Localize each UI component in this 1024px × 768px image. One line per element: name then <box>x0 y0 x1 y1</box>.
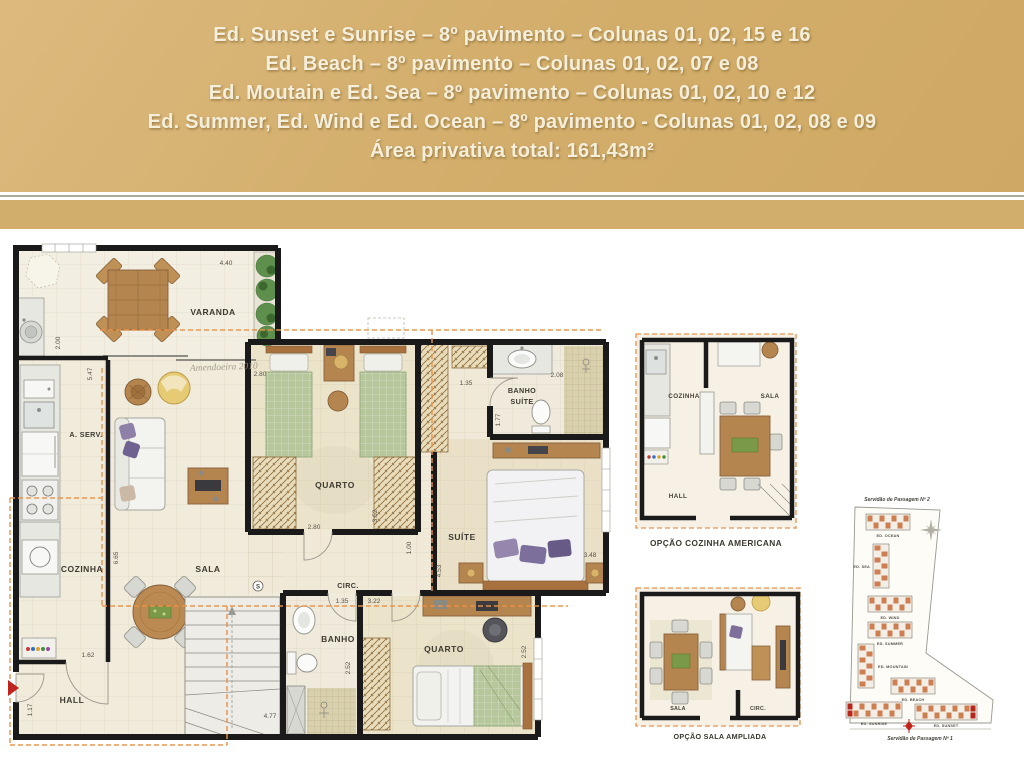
bed-single-1 <box>266 346 312 457</box>
closet-quarto2-hatch <box>362 638 390 730</box>
dim-varanda-depth: 2.00 <box>55 336 62 349</box>
dim-hall-width: 1.17 <box>27 703 34 716</box>
desk-chair <box>483 618 507 642</box>
stool <box>328 391 348 411</box>
room-label-banho-suite-1: BANHO <box>508 386 536 395</box>
room-label-a-serv: A. SERV. <box>69 430 102 439</box>
dim-suite-width: 3.48 <box>584 552 597 559</box>
dim-banho-door: 1.35 <box>336 598 349 605</box>
building-ed-sunset-label: ED. SUNSET <box>934 724 959 728</box>
site-key-plan: Servidão de Passagem Nº 2 Servidão de Pa… <box>843 468 1018 758</box>
room-label-quarto-top: QUARTO <box>315 480 355 490</box>
room-label-banho-suite-2: SUÍTE <box>510 397 533 406</box>
option2-label-circ: CIRC. <box>750 706 766 712</box>
dim-sala-length: 6.65 <box>113 551 120 564</box>
option-plan-cozinha-americana: COZINHA SALA HALL OPÇÃO COZINHA AMERICAN… <box>634 332 804 557</box>
room-label-quarto-bottom: QUARTO <box>424 644 464 654</box>
building-ed-mountain-label: ED. MOUNTAIN <box>878 665 908 669</box>
main-floor-plan: S <box>8 240 633 765</box>
header-line-1: Ed. Sunset e Sunrise – 8º pavimento – Co… <box>0 21 1024 50</box>
bed-quarto2 <box>413 663 532 729</box>
room-label-banho: BANHO <box>321 634 355 644</box>
header-gold-band <box>0 200 1024 229</box>
option-plan-sala-ampliada: SALA CIRC. OPÇÃO SALA AMPLIADA <box>634 586 806 744</box>
option2-caption: OPÇÃO SALA AMPLIADA <box>673 732 766 741</box>
header-line-area-total: Área privativa total: 161,43m² <box>0 137 1024 166</box>
section-marker-letter: S <box>256 585 260 591</box>
round-armchair <box>158 372 190 404</box>
option1-caption: OPÇÃO COZINHA AMERICANA <box>650 538 782 548</box>
building-ed-ocean-label: ED. OCEAN <box>877 534 900 538</box>
room-label-hall: HALL <box>60 695 85 705</box>
building-ed-beach-label: ED. BEACH <box>902 698 925 702</box>
dim-cozinha-length: 5.47 <box>87 367 94 380</box>
site-road-top-label: Servidão de Passagem Nº 2 <box>864 497 930 503</box>
bed-single-2 <box>360 346 406 457</box>
building-ed-sunset: ED. SUNSET <box>915 704 977 728</box>
wardrobe-right-hatch <box>374 457 416 529</box>
header-divider <box>0 192 1024 200</box>
dim-banho-suite-width: 2.08 <box>551 372 564 379</box>
sofa <box>115 418 165 510</box>
header-banner: Ed. Sunset e Sunrise – 8º pavimento – Co… <box>0 0 1024 192</box>
section-marker: S <box>253 581 263 591</box>
header-line-2: Ed. Beach – 8º pavimento – Colunas 01, 0… <box>0 50 1024 79</box>
dim-banho-suite-depth: 1.77 <box>495 413 502 426</box>
suite-closet-top-hatch <box>452 346 492 368</box>
dim-quarto2-door: 3.22 <box>368 598 381 605</box>
dim-quarto-depth: 3.52 <box>372 509 379 522</box>
option1-label-sala: SALA <box>761 393 780 400</box>
wicker-armchair <box>125 379 151 405</box>
dim-quarto2-width: 2.52 <box>521 645 528 658</box>
dim-quarto2-depth: 2.52 <box>345 661 352 674</box>
option2-label-sala: SALA <box>670 706 686 712</box>
dim-stairs-run: 4.77 <box>264 713 277 720</box>
dim-corridor-width: 1.35 <box>460 380 473 387</box>
dim-quarto-top-width: 2.80 <box>254 371 267 378</box>
dim-quarto-width: 2.80 <box>308 524 321 531</box>
dim-cozinha-door: 1.62 <box>82 652 95 659</box>
suite-dresser <box>493 443 600 458</box>
building-ed-sunrise-label: ED. SUNRISE <box>861 722 888 726</box>
header-line-4: Ed. Summer, Ed. Wind e Ed. Ocean – 8º pa… <box>0 108 1024 137</box>
suite-bed <box>483 470 588 590</box>
ac-unit-outline <box>368 318 404 338</box>
suite-closet-hatch <box>420 344 448 452</box>
site-road-bottom-label: Servidão de Passagem Nº 1 <box>887 736 953 742</box>
room-label-cozinha: COZINHA <box>61 564 103 574</box>
dim-varanda-width: 4.40 <box>220 260 233 267</box>
nightstand-quarto <box>324 345 354 381</box>
dim-suite-depth: 4.53 <box>436 564 443 577</box>
room-label-circ: CIRC. <box>337 581 359 590</box>
option1-label-cozinha: COZINHA <box>668 393 700 400</box>
building-ed-wind-label: ED. WIND <box>880 616 899 620</box>
tv-console <box>188 468 228 504</box>
option1-label-hall: HALL <box>669 493 687 500</box>
room-label-sala: SALA <box>195 564 220 574</box>
dim-circ-width: 1.00 <box>406 541 413 554</box>
header-line-3: Ed. Moutain e Ed. Sea – 8º pavimento – C… <box>0 79 1024 108</box>
wardrobe-left-hatch <box>253 457 296 529</box>
slide: Ed. Sunset e Sunrise – 8º pavimento – Co… <box>0 0 1024 768</box>
building-ed-summer-label: ED. SUMMER <box>877 642 903 646</box>
building-ed-sea-label: ED. SEA <box>853 565 870 569</box>
room-label-varanda: VARANDA <box>190 307 235 317</box>
varanda-counter-sink <box>18 298 44 356</box>
room-label-suite: SUÍTE <box>448 532 476 542</box>
